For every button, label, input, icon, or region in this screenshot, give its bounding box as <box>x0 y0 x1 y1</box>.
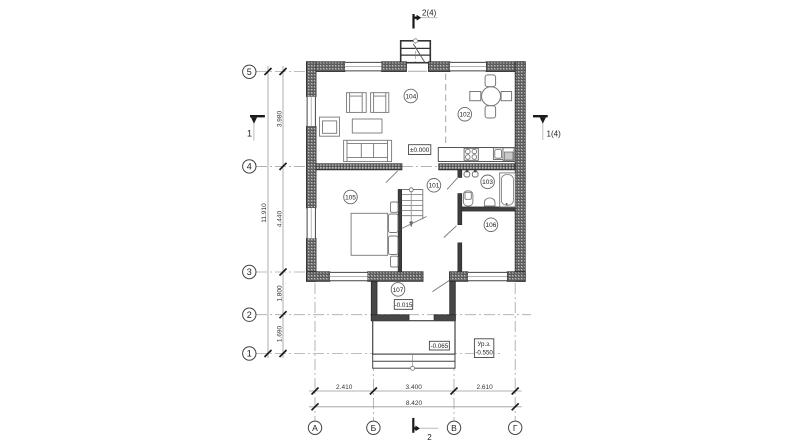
svg-text:3.400: 3.400 <box>406 384 423 391</box>
svg-text:2.610: 2.610 <box>476 384 493 391</box>
svg-text:104: 104 <box>405 93 416 100</box>
svg-text:1.690: 1.690 <box>277 325 284 342</box>
svg-text:8.420: 8.420 <box>406 400 423 407</box>
svg-text:2(4): 2(4) <box>422 9 437 18</box>
svg-text:-0.015: -0.015 <box>395 302 413 309</box>
svg-text:102: 102 <box>459 112 470 119</box>
svg-text:1: 1 <box>247 349 252 359</box>
svg-text:-0.550: -0.550 <box>475 350 493 357</box>
svg-text:4: 4 <box>247 162 252 172</box>
svg-text:2.410: 2.410 <box>336 384 353 391</box>
svg-text:Г: Г <box>513 423 518 433</box>
svg-text:3.980: 3.980 <box>277 110 284 127</box>
svg-text:106: 106 <box>485 222 496 229</box>
svg-text:±0.000: ±0.000 <box>410 147 430 154</box>
svg-text:-0.065: -0.065 <box>431 343 449 350</box>
svg-text:1: 1 <box>247 128 252 138</box>
svg-text:101: 101 <box>428 183 439 190</box>
svg-text:2: 2 <box>247 310 252 320</box>
svg-text:3: 3 <box>247 267 252 277</box>
svg-text:107: 107 <box>393 287 404 294</box>
svg-text:5: 5 <box>247 67 252 77</box>
svg-text:105: 105 <box>345 194 356 201</box>
svg-text:Б: Б <box>371 423 377 433</box>
svg-text:4.440: 4.440 <box>277 210 284 227</box>
svg-text:1.800: 1.800 <box>277 285 284 302</box>
svg-text:11.910: 11.910 <box>261 203 268 223</box>
svg-text:1(4): 1(4) <box>547 130 562 139</box>
svg-text:А: А <box>312 423 318 433</box>
svg-text:В: В <box>451 423 457 433</box>
svg-text:103: 103 <box>482 179 493 186</box>
svg-text:2: 2 <box>427 433 432 442</box>
svg-text:Ур.з.: Ур.з. <box>477 341 491 348</box>
